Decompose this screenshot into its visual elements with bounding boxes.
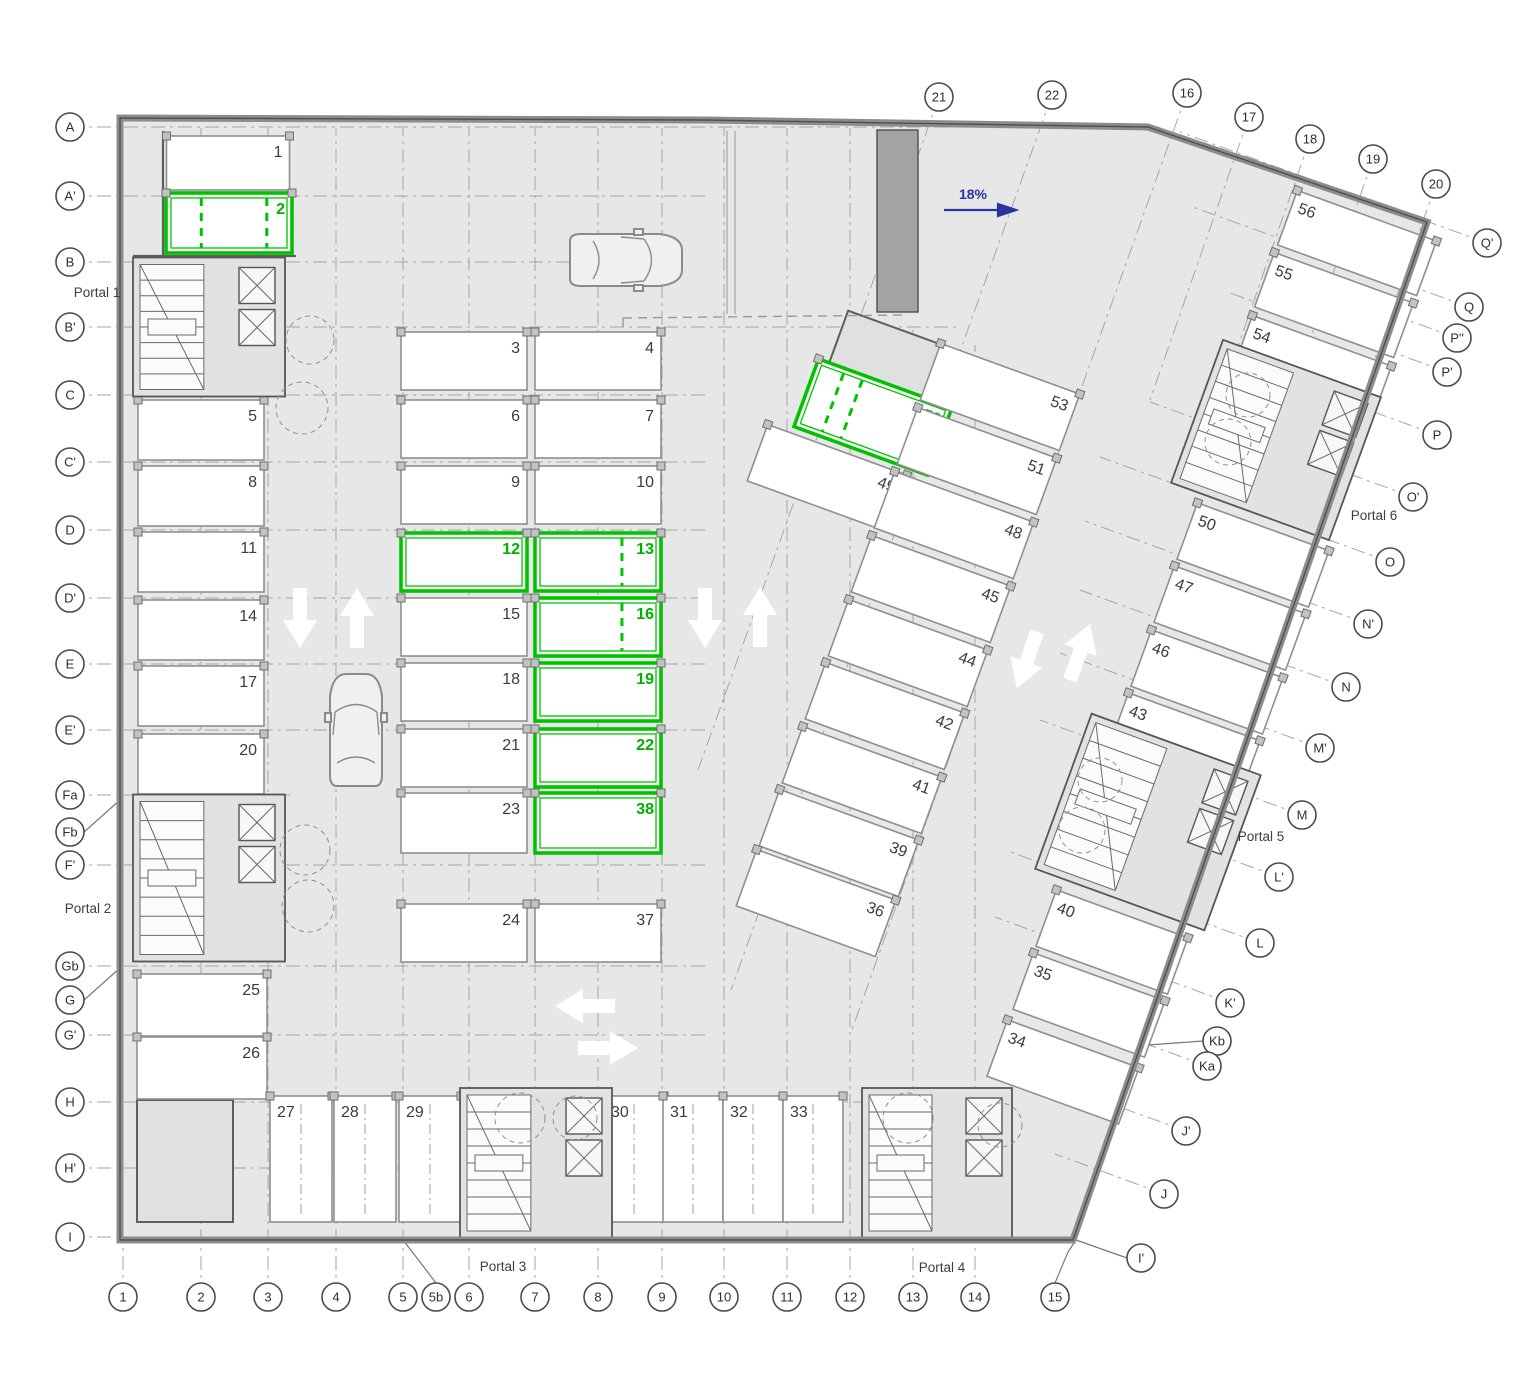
stall-number: 16: [636, 606, 654, 623]
grid-bubble-label: 12: [843, 1290, 857, 1305]
parking-stall-33: 33: [779, 1092, 847, 1222]
grid-bubble-label: A': [64, 189, 75, 204]
grid-bubble-label: 2: [197, 1290, 204, 1305]
grid-bubble-O: O: [1376, 548, 1404, 576]
stall-number: 13: [636, 541, 654, 558]
stair-elevator-core: [133, 795, 285, 962]
grid-bubble-18: 18: [1296, 125, 1324, 153]
stall-number: 23: [502, 801, 520, 818]
grid-bubble-label: B: [66, 255, 75, 270]
stall-number: 1: [274, 144, 283, 161]
grid-bubble-label: 14: [968, 1290, 982, 1305]
parking-stall-5: 5: [134, 396, 268, 460]
grid-bubble-label: G: [65, 993, 75, 1008]
parking-stall-16: 16: [531, 594, 665, 656]
grid-bubble-1: 1: [109, 1283, 137, 1311]
storage-room: [137, 1100, 233, 1222]
grid-bubble-label: 18: [1303, 132, 1317, 147]
parking-stall-24: 24: [397, 900, 531, 962]
grid-bubble-L': L': [1265, 863, 1293, 891]
grid-bubble-label: 22: [1045, 88, 1059, 103]
grid-bubble-16: 16: [1173, 79, 1201, 107]
grid-bubble-Q': Q': [1473, 229, 1501, 257]
grid-bubble-label: F': [65, 858, 75, 873]
parking-stall-27: 27: [266, 1092, 336, 1222]
grid-bubble-label: Kb: [1209, 1034, 1225, 1049]
grid-bubble-8: 8: [584, 1283, 612, 1311]
portal-label-portal-4: Portal 4: [919, 1260, 966, 1275]
stall-number: 37: [636, 912, 654, 929]
parking-stall-17: 17: [134, 662, 268, 726]
parking-stall-21: 21: [397, 725, 531, 787]
parking-stall-19: 19: [531, 659, 665, 721]
grid-bubble-G: G: [56, 986, 84, 1014]
grid-bubble-A: A: [56, 113, 84, 141]
stall-number: 26: [242, 1045, 260, 1062]
grid-bubble-label: L': [1274, 870, 1284, 885]
leader-line: [84, 800, 120, 832]
grid-bubble-label: 7: [531, 1290, 538, 1305]
grid-bubble-F': F': [56, 851, 84, 879]
parking-stall-37: 37: [531, 900, 665, 962]
grid-bubble-2: 2: [187, 1283, 215, 1311]
stall-number: 31: [670, 1104, 688, 1121]
grid-bubble-label: M': [1313, 741, 1326, 756]
grid-bubble-label: 8: [594, 1290, 601, 1305]
grid-bubble-label: Ka: [1199, 1059, 1216, 1074]
leader-line: [1055, 1240, 1076, 1283]
stall-number: 32: [730, 1104, 748, 1121]
grid-bubble-I: I: [56, 1223, 84, 1251]
grid-bubble-label: H': [64, 1161, 76, 1176]
grid-bubble-label: D': [64, 591, 76, 606]
grid-bubble-label: 5b: [429, 1290, 443, 1305]
parking-stall-7: 7: [531, 396, 665, 458]
stall-number: 2: [276, 201, 285, 218]
grid-bubble-Gb: Gb: [56, 952, 84, 980]
grid-bubble-label: 9: [658, 1290, 665, 1305]
grid-bubble-D: D: [56, 516, 84, 544]
parking-stall-3: 3: [397, 328, 531, 390]
grid-bubble-Fa: Fa: [56, 781, 84, 809]
grid-bubble-A': A': [56, 182, 84, 210]
stall-number: 28: [341, 1104, 359, 1121]
parking-stall-22: 22: [531, 725, 665, 787]
grid-bubble-label: Gb: [61, 959, 78, 974]
grid-bubble-19: 19: [1359, 145, 1387, 173]
stall-number: 6: [511, 408, 520, 425]
parking-stall-38: 38: [531, 789, 665, 853]
grid-bubble-label: J: [1161, 1187, 1168, 1202]
grid-bubble-label: 15: [1048, 1290, 1062, 1305]
grid-bubble-label: 4: [332, 1290, 339, 1305]
ramp-slope-label: 18%: [959, 186, 988, 202]
parking-stall-26: 26: [133, 1033, 271, 1099]
stall-number: 18: [502, 671, 520, 688]
grid-bubble-label: P: [1433, 428, 1442, 443]
stall-number: 17: [239, 674, 257, 691]
stall-number: 19: [636, 671, 654, 688]
stall-number: 30: [611, 1104, 629, 1121]
stall-number: 12: [502, 541, 520, 558]
grid-bubble-7: 7: [521, 1283, 549, 1311]
grid-bubble-label: 3: [264, 1290, 271, 1305]
grid-bubble-label: C: [65, 388, 74, 403]
grid-bubble-M: M: [1288, 801, 1316, 829]
stair-elevator-core: [133, 258, 285, 397]
grid-bubble-label: 17: [1242, 110, 1256, 125]
grid-bubble-label: Fb: [62, 825, 77, 840]
grid-bubble-label: A: [66, 120, 75, 135]
stall-number: 21: [502, 737, 520, 754]
portal-label-portal-6: Portal 6: [1351, 508, 1398, 523]
grid-bubble-B': B': [56, 313, 84, 341]
grid-bubble-E': E': [56, 716, 84, 744]
stall-number: 38: [636, 801, 654, 818]
grid-bubble-label: 1: [119, 1290, 126, 1305]
car-icon: [570, 229, 682, 291]
stall-number: 9: [511, 474, 520, 491]
floor-plan-drawing: 1234679101213151618192122233824375811141…: [0, 0, 1536, 1393]
grid-bubble-N: N: [1332, 673, 1360, 701]
grid-bubble-label: P': [1441, 365, 1452, 380]
grid-bubble-3: 3: [254, 1283, 282, 1311]
grid-bubble-label: N: [1341, 680, 1350, 695]
grid-bubble-D': D': [56, 584, 84, 612]
grid-bubble-label: D: [65, 523, 74, 538]
grid-bubble-Ka: Ka: [1193, 1052, 1221, 1080]
grid-bubble-9: 9: [648, 1283, 676, 1311]
grid-bubble-10: 10: [710, 1283, 738, 1311]
stall-number: 10: [636, 474, 654, 491]
grid-bubble-label: E': [64, 723, 75, 738]
parking-stall-32: 32: [719, 1092, 787, 1222]
leader-line: [403, 1240, 436, 1283]
grid-bubble-label: I': [1138, 1251, 1144, 1266]
parking-stall-25: 25: [133, 970, 271, 1036]
parking-stall-29: 29: [395, 1092, 465, 1222]
grid-bubble-label: E: [66, 657, 75, 672]
portal-label-portal-5: Portal 5: [1238, 829, 1285, 844]
grid-bubble-O': O': [1399, 483, 1427, 511]
grid-bubble-label: G': [64, 1028, 77, 1043]
grid-bubble-21: 21: [925, 83, 953, 111]
parking-stall-15: 15: [397, 594, 531, 656]
grid-bubble-P': P': [1433, 358, 1461, 386]
stall-number: 27: [277, 1104, 295, 1121]
grid-bubble-Fb: Fb: [56, 818, 84, 846]
grid-bubble-label: O: [1385, 555, 1395, 570]
grid-bubble-label: L: [1256, 936, 1263, 951]
grid-bubble-label: I: [68, 1230, 72, 1245]
grid-bubble-C: C: [56, 381, 84, 409]
grid-bubble-P'': P'': [1443, 324, 1471, 352]
grid-bubble-L: L: [1246, 929, 1274, 957]
grid-bubble-label: K': [1224, 996, 1235, 1011]
parking-stall-23: 23: [397, 789, 531, 853]
leader-line: [84, 968, 120, 1000]
stall-number: 22: [636, 737, 654, 754]
stall-number: 25: [242, 982, 260, 999]
portal-label-portal-3: Portal 3: [480, 1259, 527, 1274]
grid-bubble-label: O': [1407, 490, 1420, 505]
grid-bubble-G': G': [56, 1021, 84, 1049]
grid-bubble-label: C': [64, 455, 76, 470]
grid-bubble-label: Fa: [62, 788, 78, 803]
grid-bubble-17: 17: [1235, 103, 1263, 131]
ramp-wall: [877, 130, 918, 312]
parking-stall-20: 20: [134, 730, 268, 794]
grid-bubble-label: H: [65, 1095, 74, 1110]
stall-number: 24: [502, 912, 520, 929]
grid-bubble-P: P: [1423, 421, 1451, 449]
grid-bubble-6: 6: [455, 1283, 483, 1311]
grid-bubble-J: J: [1150, 1180, 1178, 1208]
grid-bubble-label: J': [1182, 1124, 1191, 1139]
grid-bubble-13: 13: [899, 1283, 927, 1311]
stall-number: 4: [645, 340, 654, 357]
grid-bubble-Kb: Kb: [1203, 1027, 1231, 1055]
stall-number: 11: [240, 540, 257, 557]
stall-number: 29: [406, 1104, 424, 1121]
grid-bubble-label: Q': [1481, 236, 1494, 251]
grid-bubble-label: P'': [1450, 331, 1464, 346]
grid-bubble-B: B: [56, 248, 84, 276]
parking-stall-14: 14: [134, 596, 268, 660]
parking-stall-12: 12: [397, 529, 531, 591]
parking-stall-4: 4: [531, 328, 665, 390]
grid-bubble-label: 5: [399, 1290, 406, 1305]
stall-number: 33: [790, 1104, 808, 1121]
grid-bubble-H': H': [56, 1154, 84, 1182]
grid-bubble-M': M': [1306, 734, 1334, 762]
grid-bubble-E: E: [56, 650, 84, 678]
grid-bubble-label: 16: [1180, 86, 1194, 101]
grid-bubble-label: Q: [1464, 300, 1474, 315]
parking-stall-8: 8: [134, 462, 268, 526]
parking-floor-plan: 1234679101213151618192122233824375811141…: [0, 0, 1536, 1393]
grid-bubble-22: 22: [1038, 81, 1066, 109]
grid-bubble-20: 20: [1422, 170, 1450, 198]
grid-bubble-label: N': [1362, 617, 1374, 632]
grid-bubble-K': K': [1216, 989, 1244, 1017]
parking-stall-1: 1: [163, 132, 294, 190]
portal-label-portal-2: Portal 2: [65, 901, 112, 916]
grid-bubble-5b: 5b: [422, 1283, 450, 1311]
grid-bubble-label: 21: [932, 90, 946, 105]
stall-number: 8: [248, 474, 257, 491]
stair-elevator-core: [460, 1088, 612, 1238]
stall-number: 5: [248, 408, 257, 425]
stall-number: 15: [502, 606, 520, 623]
parking-stall-18: 18: [397, 659, 531, 721]
stall-number: 20: [239, 742, 257, 759]
parking-stall-2: 2: [162, 189, 296, 253]
parking-stall-9: 9: [397, 462, 531, 524]
grid-bubble-label: 6: [465, 1290, 472, 1305]
grid-bubble-label: B': [64, 320, 75, 335]
grid-bubble-Q: Q: [1455, 293, 1483, 321]
parking-stall-6: 6: [397, 396, 531, 458]
grid-bubble-label: 19: [1366, 152, 1380, 167]
grid-bubble-label: 11: [780, 1290, 794, 1305]
grid-bubble-label: 10: [717, 1290, 731, 1305]
grid-bubble-5: 5: [389, 1283, 417, 1311]
stall-number: 3: [511, 340, 520, 357]
portal-label-portal-1: Portal 1: [74, 285, 121, 300]
parking-stall-10: 10: [531, 462, 665, 524]
grid-bubble-15: 15: [1041, 1283, 1069, 1311]
parking-stall-11: 11: [134, 528, 268, 592]
grid-bubble-J': J': [1172, 1117, 1200, 1145]
grid-bubble-12: 12: [836, 1283, 864, 1311]
grid-bubble-14: 14: [961, 1283, 989, 1311]
grid-bubble-label: 13: [906, 1290, 920, 1305]
grid-bubble-label: M: [1297, 808, 1308, 823]
grid-bubble-I': I': [1127, 1244, 1155, 1272]
grid-bubble-label: 20: [1429, 177, 1443, 192]
parking-stall-31: 31: [659, 1092, 727, 1222]
stall-number: 7: [645, 408, 654, 425]
grid-bubble-4: 4: [322, 1283, 350, 1311]
grid-bubble-N': N': [1354, 610, 1382, 638]
grid-bubble-C': C': [56, 448, 84, 476]
grid-bubble-H: H: [56, 1088, 84, 1116]
parking-stall-13: 13: [531, 529, 665, 591]
leader-line: [1076, 1240, 1127, 1258]
grid-bubble-11: 11: [773, 1283, 801, 1311]
stall-number: 14: [239, 608, 257, 625]
parking-stall-28: 28: [330, 1092, 400, 1222]
car-icon: [325, 674, 387, 786]
